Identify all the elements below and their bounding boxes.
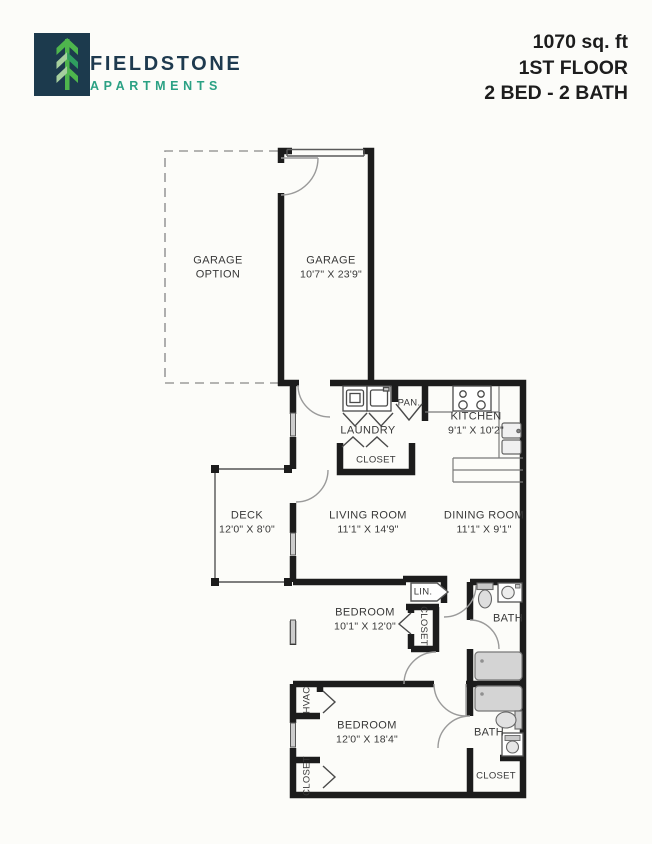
deck-door-arc: [296, 470, 328, 502]
floor-plan-drawing: [0, 0, 652, 844]
bedroom2-closet-door: [323, 766, 335, 788]
bath2-door-arc: [438, 716, 470, 748]
washer-dryer-icons: [343, 386, 391, 411]
bath1-label: BATH: [493, 612, 523, 626]
living-room-label: LIVING ROOM 11'1" X 14'9": [329, 510, 407, 537]
dining-room-label: DINING ROOM 11'1" X 9'1": [444, 510, 524, 537]
bedroom2-label: BEDROOM 12'0" X 18'4": [336, 720, 398, 747]
bathtub1-icon: [475, 652, 522, 680]
kitchen-label: KITCHEN 9'1" X 10'2": [448, 411, 504, 438]
laundry-closet-label: CLOSET: [356, 453, 396, 467]
toilet-icon: [477, 583, 493, 608]
bedroom1-closet-label: CLOSET: [416, 606, 430, 646]
laundry-closet-bifold: [342, 437, 388, 447]
bedroom1-closet-door: [399, 613, 411, 634]
kitchen-sink-icon: [502, 423, 521, 454]
bath2-fixtures: [475, 686, 523, 756]
bath2-label: BATH: [474, 726, 504, 740]
laundry-entry-door-arc: [298, 385, 330, 417]
bath2-toilet-icon: [502, 733, 523, 756]
hvac-door: [323, 691, 335, 713]
garage-door: [287, 150, 364, 157]
bedroom2-closet-label: CLOSET: [300, 756, 314, 796]
floorplan-page: FIELDSTONE APARTMENTS 1070 sq. ft 1ST FL…: [0, 0, 652, 844]
bathtub2-icon: [475, 686, 522, 711]
bedroom2-door-arc: [434, 684, 466, 716]
bath1-sink-icon: [498, 583, 522, 602]
garage-label: GARAGE 10'7" X 23'9": [300, 255, 362, 282]
bedroom1-label: BEDROOM 10'1" X 12'0": [334, 607, 396, 634]
garage-service-door-arc: [281, 158, 318, 195]
garage-option-label: GARAGE OPTION: [193, 255, 242, 282]
deck-label: DECK 12'0" X 8'0": [219, 510, 275, 537]
stove-icon: [453, 386, 491, 411]
bedroom1-door-arc: [404, 652, 436, 684]
pantry-label: PAN.: [398, 396, 421, 410]
bath1-fixtures: [475, 583, 522, 680]
linen-label: LIN.: [414, 585, 433, 599]
hvac-label: HVAC: [300, 687, 314, 714]
bath2-closet-label: CLOSET: [476, 769, 516, 783]
laundry-label: LAUNDRY: [340, 424, 395, 438]
